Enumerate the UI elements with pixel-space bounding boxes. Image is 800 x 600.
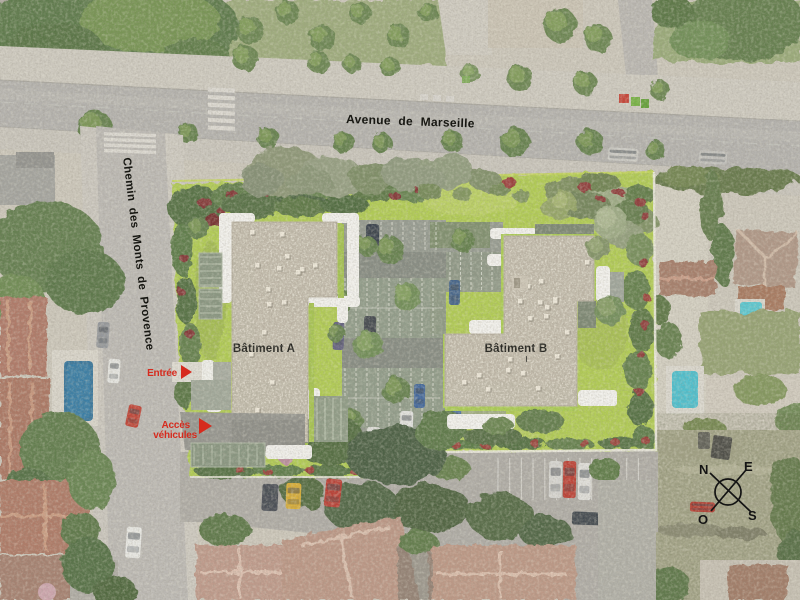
svg-text:Entrée: Entrée <box>147 368 178 379</box>
svg-text:O: O <box>698 512 708 527</box>
svg-text:N: N <box>699 462 708 477</box>
svg-text:S: S <box>748 508 757 523</box>
svg-text:véhicules: véhicules <box>153 430 197 441</box>
svg-text:E: E <box>744 459 753 474</box>
